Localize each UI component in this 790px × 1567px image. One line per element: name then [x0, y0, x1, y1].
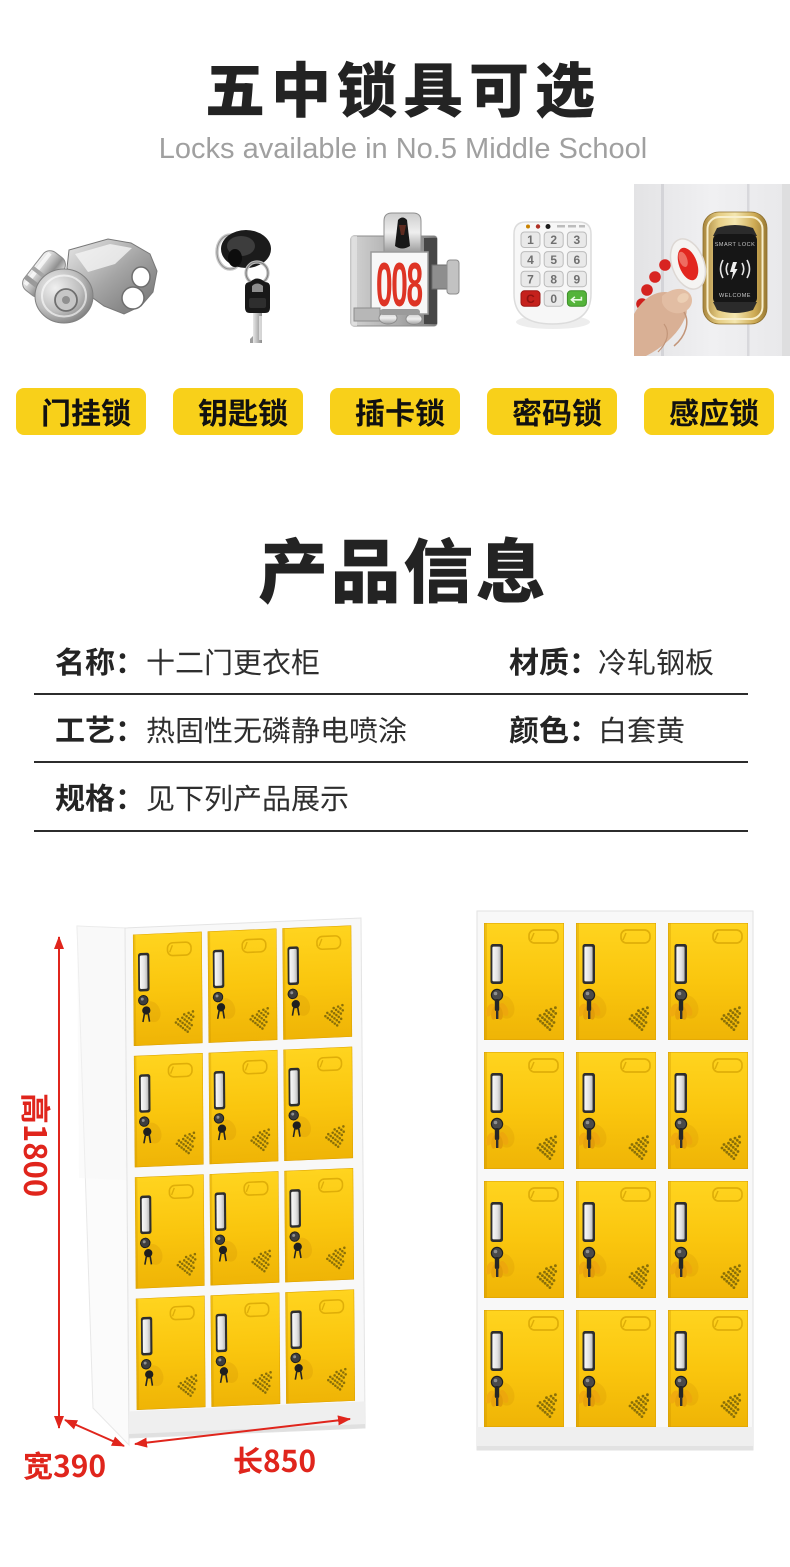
svg-text:3: 3: [574, 233, 581, 247]
svg-text:1: 1: [527, 233, 534, 247]
svg-text:6: 6: [574, 253, 581, 267]
svg-text:C: C: [526, 292, 535, 306]
svg-text:SMART LOCK: SMART LOCK: [715, 242, 756, 248]
svg-text:4: 4: [527, 253, 534, 267]
svg-text:7: 7: [527, 272, 534, 286]
svg-text:0: 0: [550, 292, 557, 306]
svg-text:WELCOME: WELCOME: [719, 293, 751, 299]
svg-text:9: 9: [574, 272, 581, 286]
svg-text:5: 5: [550, 253, 557, 267]
svg-text:2: 2: [550, 233, 557, 247]
svg-text:8: 8: [550, 272, 557, 286]
